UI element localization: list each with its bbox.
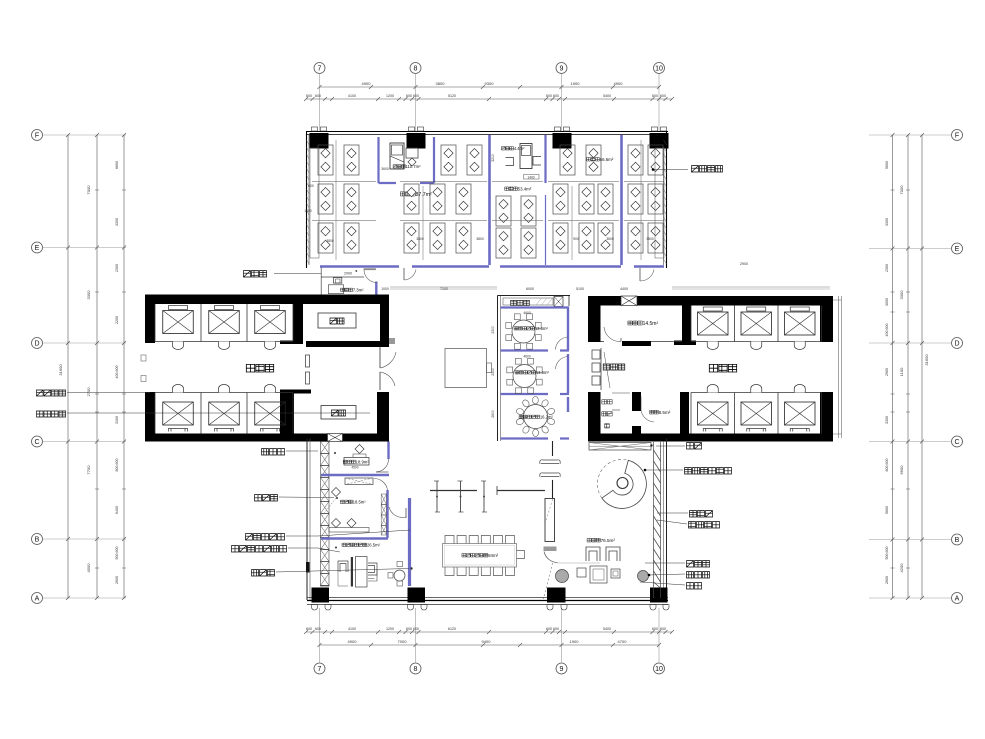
svg-text:7.3m²: 7.3m² (353, 288, 364, 293)
svg-text:4900: 4900 (614, 81, 624, 86)
svg-text:84m²: 84m² (488, 553, 499, 558)
svg-text:4500: 4500 (351, 466, 358, 470)
svg-text:E: E (955, 246, 960, 253)
svg-text:600: 600 (406, 94, 412, 98)
svg-text:5120: 5120 (448, 94, 456, 98)
svg-text:1400: 1400 (527, 176, 534, 180)
svg-text:18.9m²: 18.9m² (356, 460, 370, 465)
svg-text:7000: 7000 (899, 185, 904, 195)
svg-text:600: 600 (546, 627, 552, 631)
svg-text:5400: 5400 (603, 627, 611, 631)
svg-text:600: 600 (652, 627, 658, 631)
svg-text:5600: 5600 (885, 161, 889, 169)
svg-text:3800: 3800 (476, 237, 484, 241)
svg-text:3210: 3210 (491, 154, 495, 162)
svg-text:9: 9 (560, 66, 564, 73)
svg-text:2600: 2600 (115, 576, 119, 584)
svg-text:31600: 31600 (924, 354, 929, 366)
svg-text:C: C (954, 439, 959, 446)
svg-text:600: 600 (553, 627, 559, 631)
svg-text:600: 600 (660, 627, 666, 631)
svg-text:7000: 7000 (398, 639, 408, 644)
svg-text:76.5m²: 76.5m² (601, 538, 616, 543)
svg-text:13.6m²: 13.6m² (535, 326, 549, 331)
svg-text:600: 600 (553, 94, 559, 98)
svg-text:26.5m²: 26.5m² (367, 543, 381, 548)
svg-text:6400: 6400 (115, 506, 119, 514)
svg-text:2200: 2200 (115, 316, 119, 324)
svg-text:1000: 1000 (381, 287, 389, 291)
svg-text:9400: 9400 (482, 639, 492, 644)
svg-text:600: 600 (406, 627, 412, 631)
svg-text:3800: 3800 (646, 237, 654, 241)
svg-text:2300: 2300 (885, 264, 889, 272)
svg-text:110.7m²: 110.7m² (405, 164, 421, 169)
svg-text:600: 600 (315, 627, 321, 631)
svg-text:3300: 3300 (899, 290, 904, 300)
svg-text:8.5m²: 8.5m² (659, 410, 671, 415)
svg-text:4600: 4600 (523, 311, 531, 315)
svg-text:8: 8 (414, 66, 418, 73)
svg-text:3600: 3600 (381, 167, 389, 171)
svg-text:87.7m²: 87.7m² (416, 192, 432, 198)
svg-text:600: 600 (308, 184, 314, 188)
svg-text:1000: 1000 (304, 209, 312, 213)
svg-text:3100: 3100 (115, 416, 119, 424)
svg-text:600: 600 (306, 94, 312, 98)
svg-text:3800: 3800 (606, 237, 614, 241)
svg-text:10: 10 (655, 666, 663, 673)
svg-text:3000: 3000 (885, 298, 889, 306)
svg-text:B: B (955, 537, 960, 544)
svg-text:7000: 7000 (86, 185, 91, 195)
svg-text:600: 600 (652, 94, 658, 98)
svg-text:900: 900 (573, 237, 579, 241)
svg-text:2600: 2600 (491, 410, 495, 418)
svg-text:2600: 2600 (885, 576, 889, 584)
svg-text:D: D (34, 341, 39, 348)
svg-text:600: 600 (546, 94, 552, 98)
svg-text:6600: 6600 (899, 465, 904, 475)
svg-text:7700: 7700 (86, 465, 91, 475)
svg-text:4100: 4100 (348, 627, 356, 631)
svg-text:7: 7 (318, 66, 322, 73)
svg-text:2300: 2300 (491, 326, 495, 334)
svg-text:E: E (35, 245, 40, 252)
svg-text:1900: 1900 (570, 639, 580, 644)
svg-text:13.6m²: 13.6m² (536, 370, 550, 375)
svg-text:A: A (35, 596, 40, 603)
svg-text:8: 8 (414, 666, 418, 673)
svg-text:800,600: 800,600 (885, 459, 889, 472)
svg-text:16.2m²: 16.2m² (540, 415, 554, 420)
svg-text:C: C (34, 439, 39, 446)
svg-text:F: F (35, 133, 39, 140)
svg-text:53.4m²: 53.4m² (518, 187, 532, 192)
svg-text:4100: 4100 (348, 94, 356, 98)
svg-text:1200: 1200 (386, 627, 394, 631)
svg-text:3800: 3800 (436, 81, 446, 86)
svg-text:4500: 4500 (86, 563, 91, 573)
svg-text:14.5m²: 14.5m² (643, 321, 659, 327)
svg-text:31600: 31600 (58, 364, 63, 376)
svg-text:7: 7 (318, 666, 322, 673)
svg-text:B: B (35, 537, 40, 544)
svg-text:5400: 5400 (603, 94, 611, 98)
svg-text:600: 600 (413, 627, 419, 631)
svg-text:400,600: 400,600 (115, 366, 119, 379)
svg-text:600: 600 (315, 94, 321, 98)
svg-text:F: F (955, 133, 959, 140)
svg-text:3300: 3300 (115, 218, 119, 226)
svg-text:800,600: 800,600 (115, 459, 119, 472)
svg-text:9: 9 (560, 666, 564, 673)
svg-text:10: 10 (655, 66, 663, 73)
svg-text:2900: 2900 (885, 368, 889, 376)
svg-text:6600: 6600 (115, 161, 119, 169)
svg-text:3300: 3300 (885, 416, 889, 424)
svg-text:3800: 3800 (326, 239, 334, 243)
svg-text:4700: 4700 (618, 639, 628, 644)
svg-text:1200: 1200 (386, 94, 394, 98)
svg-text:2900: 2900 (740, 262, 748, 266)
svg-text:1100: 1100 (899, 367, 904, 376)
svg-text:5600: 5600 (885, 506, 889, 514)
svg-text:2700: 2700 (86, 387, 91, 397)
svg-text:4.4m²: 4.4m² (514, 146, 525, 151)
svg-text:600: 600 (306, 627, 312, 631)
svg-text:A: A (955, 596, 960, 603)
svg-text:4600: 4600 (523, 355, 531, 359)
svg-text:66.6m²: 66.6m² (600, 157, 614, 162)
svg-text:5100: 5100 (576, 287, 584, 291)
svg-text:4900: 4900 (362, 81, 372, 86)
svg-text:2300: 2300 (115, 264, 119, 272)
svg-text:600: 600 (413, 94, 419, 98)
svg-text:400,600: 400,600 (885, 324, 889, 337)
svg-text:3800: 3800 (416, 237, 424, 241)
svg-text:4900: 4900 (348, 639, 358, 644)
svg-text:500,600: 500,600 (885, 547, 889, 560)
svg-text:3300: 3300 (885, 218, 889, 226)
svg-text:1900: 1900 (571, 81, 581, 86)
svg-text:2900: 2900 (344, 272, 352, 276)
svg-text:500,600: 500,600 (115, 547, 119, 560)
svg-text:18.5m²: 18.5m² (353, 500, 367, 505)
svg-text:6120: 6120 (448, 627, 456, 631)
svg-text:9300: 9300 (485, 81, 495, 86)
svg-text:6000: 6000 (526, 287, 534, 291)
svg-text:3300: 3300 (86, 290, 91, 300)
svg-text:4400: 4400 (620, 287, 628, 291)
svg-text:D: D (954, 341, 959, 348)
svg-text:4200: 4200 (899, 563, 904, 573)
svg-text:600: 600 (660, 94, 666, 98)
